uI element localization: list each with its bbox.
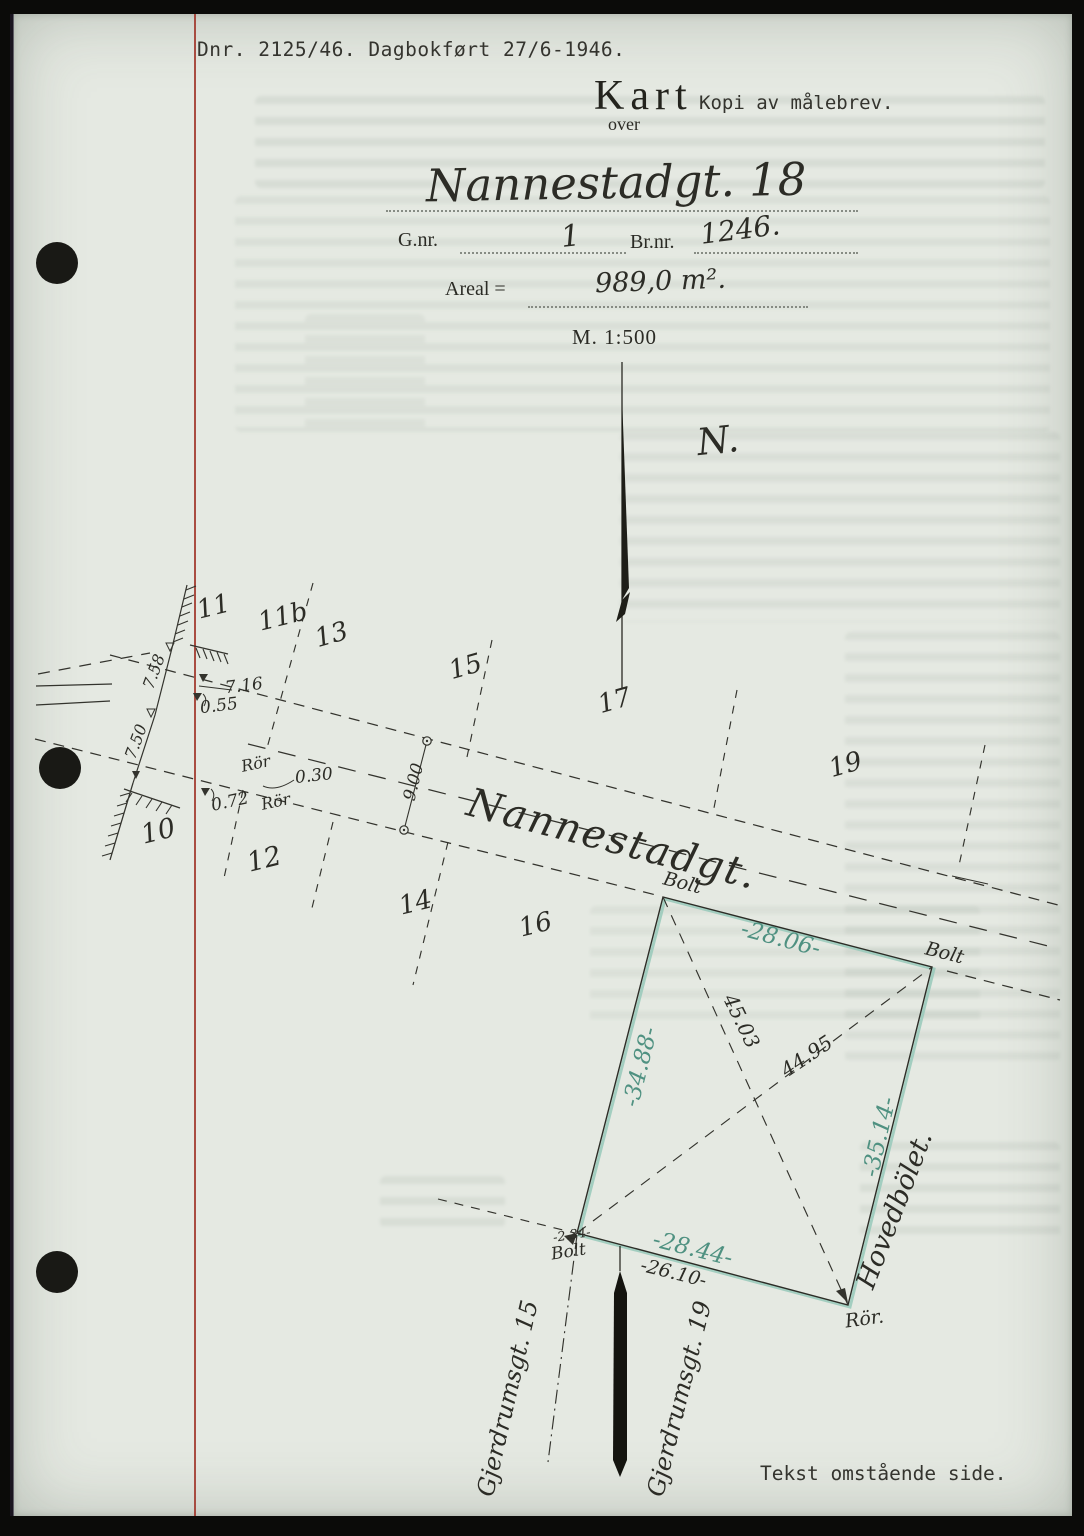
north-label: N. <box>695 417 741 464</box>
north-arrow <box>616 362 630 688</box>
map-linework <box>13 14 1072 1516</box>
paper-sheet: Dnr. 2125/46. Dagbokført 27/6-1946. Kart… <box>13 14 1072 1516</box>
scanned-survey-map-page: Dnr. 2125/46. Dagbokført 27/6-1946. Kart… <box>0 0 1084 1536</box>
footer-note: Tekst omstående side. <box>760 1462 1007 1485</box>
measure-0-30: 0.30 <box>294 764 334 788</box>
gjerdrumsgt-road-bar <box>613 1246 627 1477</box>
scan-edge-tint <box>10 14 14 1516</box>
